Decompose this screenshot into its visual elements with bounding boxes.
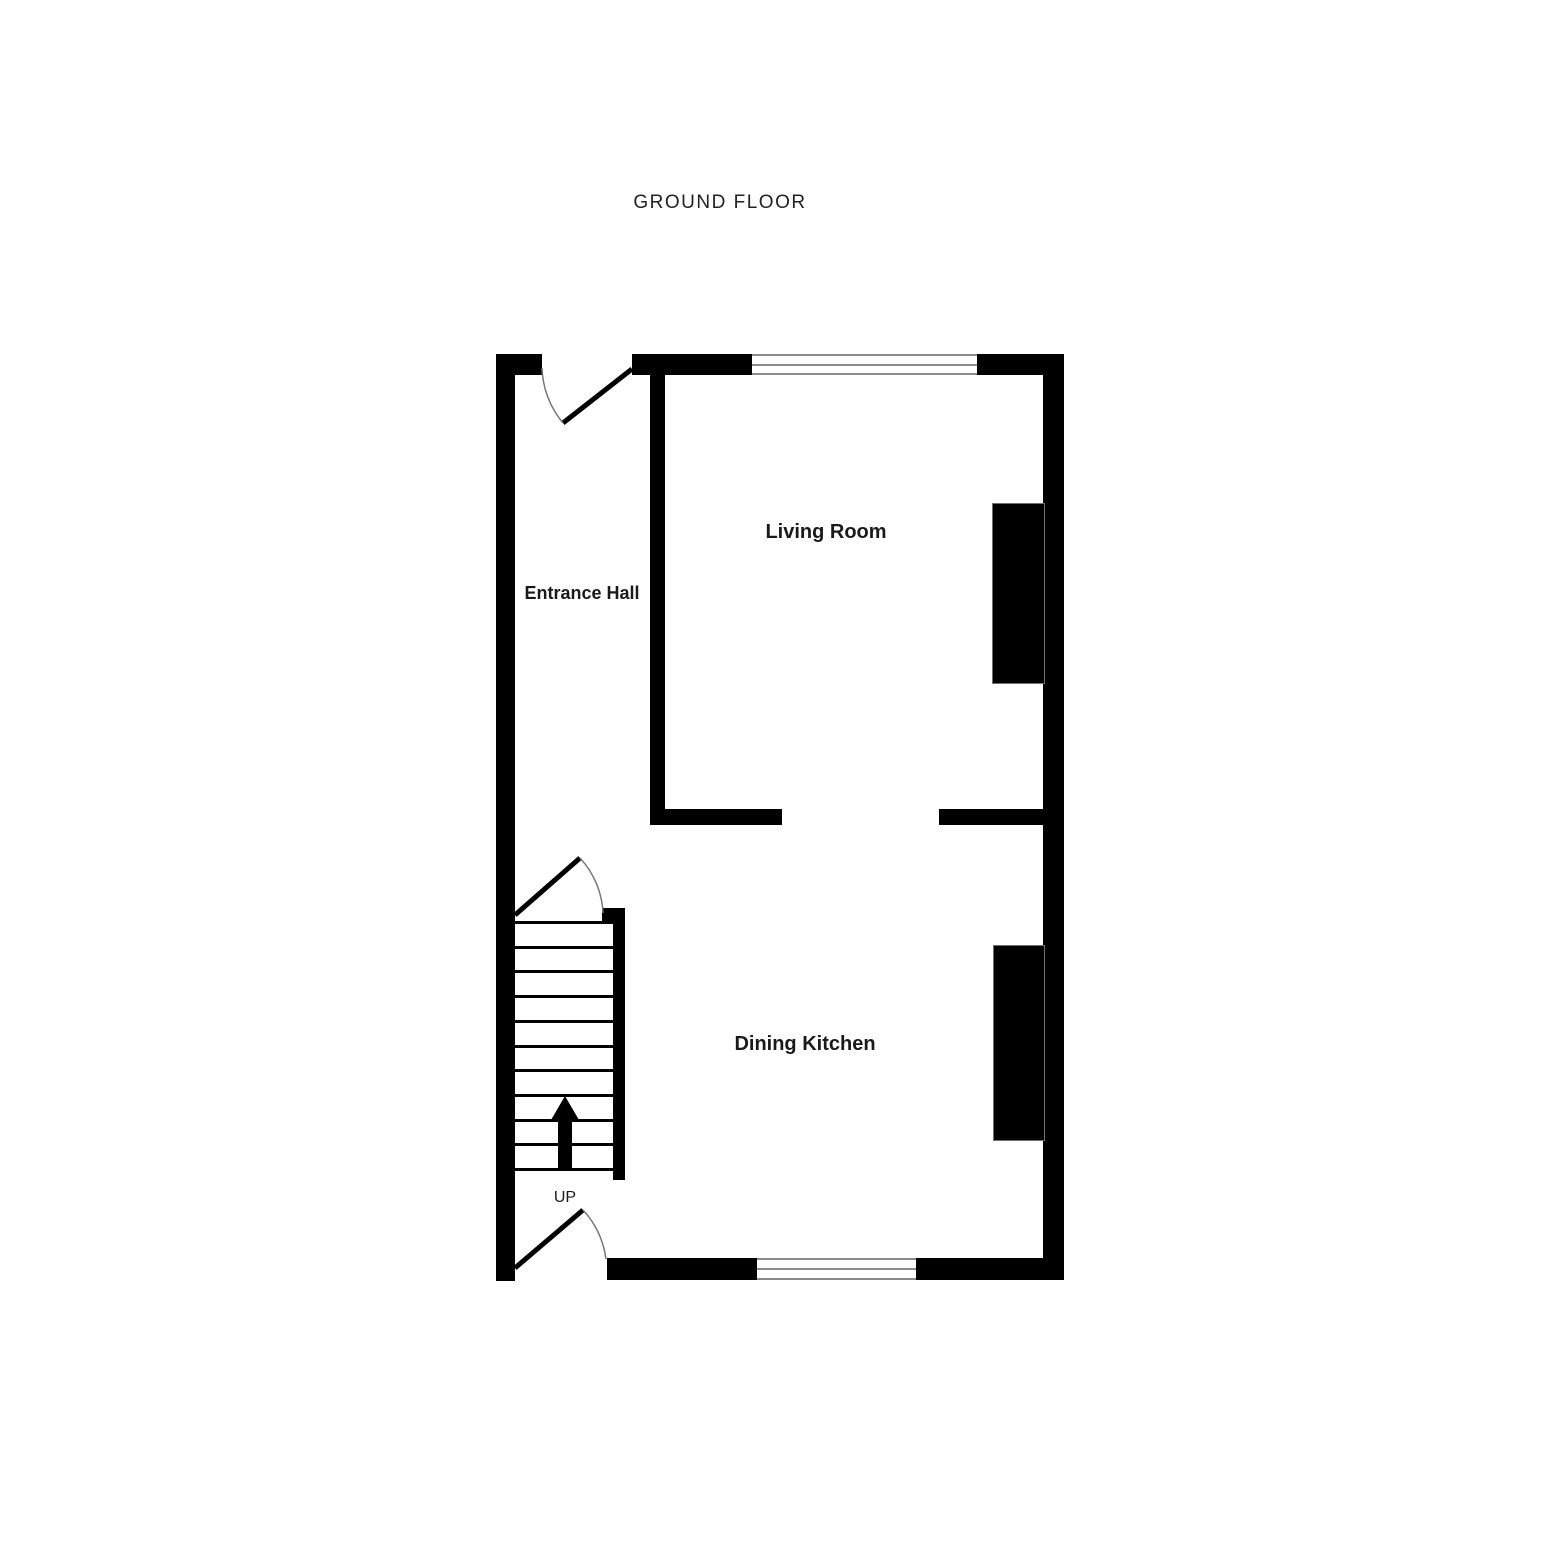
- stair-door-swing-arc: [580, 858, 603, 913]
- window-frame-line: [752, 364, 977, 366]
- stair-tread: [515, 921, 613, 924]
- plan-title: GROUND FLOOR: [600, 192, 840, 214]
- window-frame-line: [757, 1268, 916, 1270]
- right-exterior-wall: [1043, 354, 1064, 1280]
- stair-tread: [515, 970, 613, 973]
- top-wall-left-stub: [496, 354, 542, 375]
- stair-tread: [515, 1045, 613, 1048]
- dining-kitchen-chimney-breast: [993, 945, 1045, 1141]
- stair-tread: [515, 1020, 613, 1023]
- window-frame-line: [752, 354, 977, 356]
- bottom-wall-left: [607, 1258, 757, 1280]
- entrance-door-leaf: [515, 1210, 583, 1268]
- front-door-leaf: [563, 369, 632, 423]
- window-frame-line: [752, 373, 977, 375]
- entrance-hall-label: Entrance Hall: [482, 583, 682, 604]
- dining-kitchen-label: Dining Kitchen: [705, 1033, 905, 1056]
- living-room-chimney-breast: [992, 503, 1045, 684]
- dining-kitchen-window: [757, 1258, 916, 1280]
- stair-side-wall-cap: [602, 908, 625, 922]
- stairs-up-arrow-head: [551, 1096, 579, 1120]
- stair-side-wall: [613, 910, 625, 1180]
- stair-tread: [515, 995, 613, 998]
- floor-plan: GROUND FLOOR Living Room: [0, 0, 1559, 1559]
- left-exterior-wall: [496, 354, 515, 1281]
- mid-divider-wall-left: [650, 809, 782, 825]
- living-room-label: Living Room: [726, 521, 926, 544]
- stairs-up-arrow-shaft: [558, 1119, 572, 1169]
- mid-divider-wall-right: [939, 809, 1043, 825]
- stair-door-leaf: [515, 858, 580, 915]
- stair-tread: [515, 1069, 613, 1072]
- window-frame-line: [757, 1278, 916, 1280]
- doors-overlay: [0, 0, 1559, 1559]
- stairs-up-label: UP: [515, 1189, 615, 1207]
- living-room-window: [752, 354, 977, 375]
- entrance-door-swing-arc: [583, 1210, 606, 1259]
- window-frame-line: [757, 1258, 916, 1260]
- front-door-swing-arc: [542, 368, 563, 423]
- top-wall-middle: [632, 354, 752, 375]
- stair-tread: [515, 946, 613, 949]
- bottom-wall-right: [916, 1258, 1064, 1280]
